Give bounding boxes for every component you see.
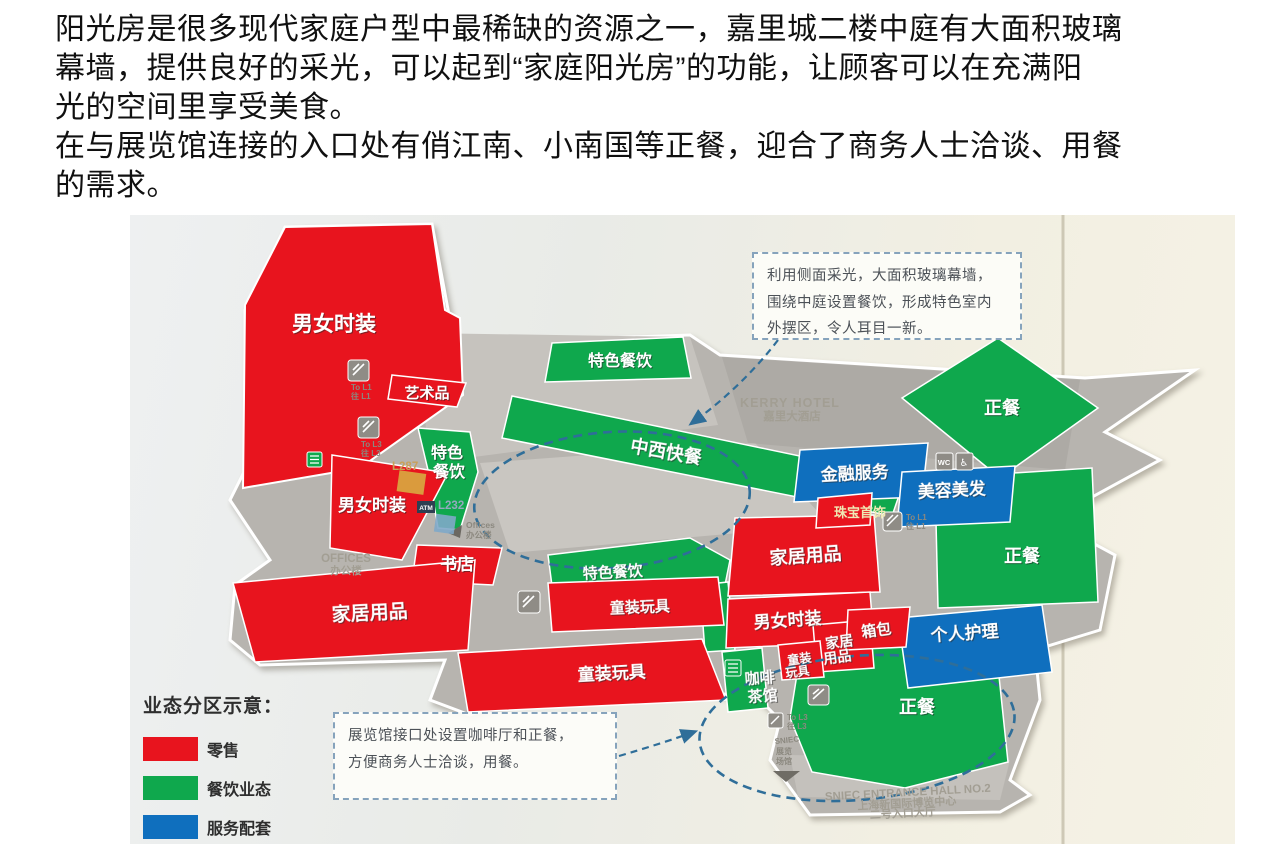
accessible-icon: ♿ <box>956 453 973 470</box>
zone-label: 茶馆 <box>747 686 778 706</box>
escalator-icon <box>768 713 783 728</box>
escalator-to-l1-label: To L1 <box>906 513 927 522</box>
legend-row-retail: 零售 <box>143 736 443 761</box>
zone-label: 书店 <box>440 554 474 574</box>
intro-line: 在与展览馆连接的入口处有俏江南、小南国等正餐，迎合了商务人士洽谈、用餐 <box>55 127 1230 166</box>
callout-entrance-connector <box>619 732 694 756</box>
sniec-hall-l2: 展览 <box>775 746 792 756</box>
zone-label: 特色餐饮 <box>588 351 653 370</box>
zone-label: 咖啡 <box>744 668 775 688</box>
zone-label: 正餐 <box>899 696 936 717</box>
legend-swatch-dining <box>143 776 198 800</box>
atm-icon: ATM <box>417 501 435 513</box>
mall-map-scan: KERRY HOTEL 嘉里大酒店 OFFICES 办公楼 Offices 办公… <box>130 215 1235 844</box>
zone-label: 正餐 <box>984 397 1021 418</box>
unit-l232-label: L232 <box>438 500 464 512</box>
zone-label: 艺术品 <box>404 384 449 402</box>
callout-line: 利用侧面采光，大面积玻璃幕墙， <box>767 263 1007 290</box>
escalator-to-l3-label-cn: 往 L3 <box>361 448 381 458</box>
legend-swatch-service <box>143 815 198 839</box>
legend-label: 餐饮业态 <box>207 776 271 800</box>
intro-line: 的需求。 <box>55 166 1230 205</box>
zone-label: 童装玩具 <box>577 661 646 685</box>
svg-text:ATM: ATM <box>419 505 433 512</box>
escalator-to-l1-label: To L1 <box>351 383 372 392</box>
escalator-to-l3-label: To L3 <box>787 713 808 722</box>
zone-label: 男女时装 <box>292 312 376 336</box>
restroom-icon: WC <box>936 453 953 470</box>
intro-line: 光的空间里享受美食。 <box>55 88 1230 127</box>
zone-label: 特色餐饮 <box>582 561 644 582</box>
zone-label: 男女时装 <box>338 495 406 515</box>
sniec-hall-l3: 场馆 <box>776 756 792 766</box>
zone-label: 特色 <box>431 443 463 462</box>
zone-label: 美容美发 <box>917 478 987 502</box>
svg-text:WC: WC <box>938 458 951 467</box>
unit-l287-block <box>397 470 427 495</box>
offices-label-cn: 办公楼 <box>330 564 362 577</box>
offices-label-en: OFFICES <box>321 553 371 565</box>
hotel-name-cn: 嘉里大酒店 <box>762 409 821 423</box>
escalator-to-l3-label: To L3 <box>361 440 382 449</box>
escalator-icon <box>518 591 540 613</box>
hotel-name-en: KERRY HOTEL <box>740 396 840 410</box>
escalator-icon <box>808 685 829 705</box>
facility-icon <box>307 452 322 467</box>
legend-title: 业态分区示意： <box>143 691 443 718</box>
legend-label: 零售 <box>207 737 239 761</box>
svg-text:♿: ♿ <box>960 458 969 469</box>
offices-small-cn: 办公楼 <box>466 530 492 540</box>
zone-label: 童装玩具 <box>610 597 671 617</box>
callout-atrium: 利用侧面采光，大面积玻璃幕墙， 围绕中庭设置餐饮，形成特色室内 外摆区，令人耳目… <box>752 252 1022 340</box>
escalator-icon <box>348 360 369 381</box>
zone-label: 金融服务 <box>819 461 890 485</box>
facility-icon <box>725 660 741 676</box>
escalator-to-l3-label-cn: 往 L3 <box>787 721 807 731</box>
intro-paragraph: 阳光房是很多现代家庭户型中最稀缺的资源之一，嘉里城二楼中庭有大面积玻璃 幕墙，提… <box>55 10 1230 205</box>
escalator-icon <box>358 417 379 438</box>
escalator-to-l1-label-cn: 往 L1 <box>351 391 371 401</box>
callout-line: 围绕中庭设置餐饮，形成特色室内 <box>767 290 1007 317</box>
intro-line: 阳光房是很多现代家庭户型中最稀缺的资源之一，嘉里城二楼中庭有大面积玻璃 <box>55 10 1230 49</box>
zone-label: 餐饮 <box>432 462 466 481</box>
escalator-to-l1-label-cn: 往 L1 <box>906 521 926 531</box>
legend-row-dining: 餐饮业态 <box>143 775 443 800</box>
zone-label: 正餐 <box>1004 545 1041 566</box>
legend-label: 服务配套 <box>207 815 271 839</box>
callout-line: 外摆区，令人耳目一新。 <box>767 316 1007 343</box>
map-legend: 业态分区示意： 零售 餐饮业态 服务配套 <box>143 691 443 853</box>
legend-swatch-retail <box>143 737 198 761</box>
zone-label: 珠宝首饰 <box>834 505 886 520</box>
intro-line: 幕墙，提供良好的采光，可以起到“家庭阳光房”的功能，让顾客可以在充满阳 <box>55 49 1230 88</box>
unit-l232-block <box>434 514 456 535</box>
legend-row-service: 服务配套 <box>143 814 443 839</box>
offices-small-en: Offices <box>466 520 495 530</box>
